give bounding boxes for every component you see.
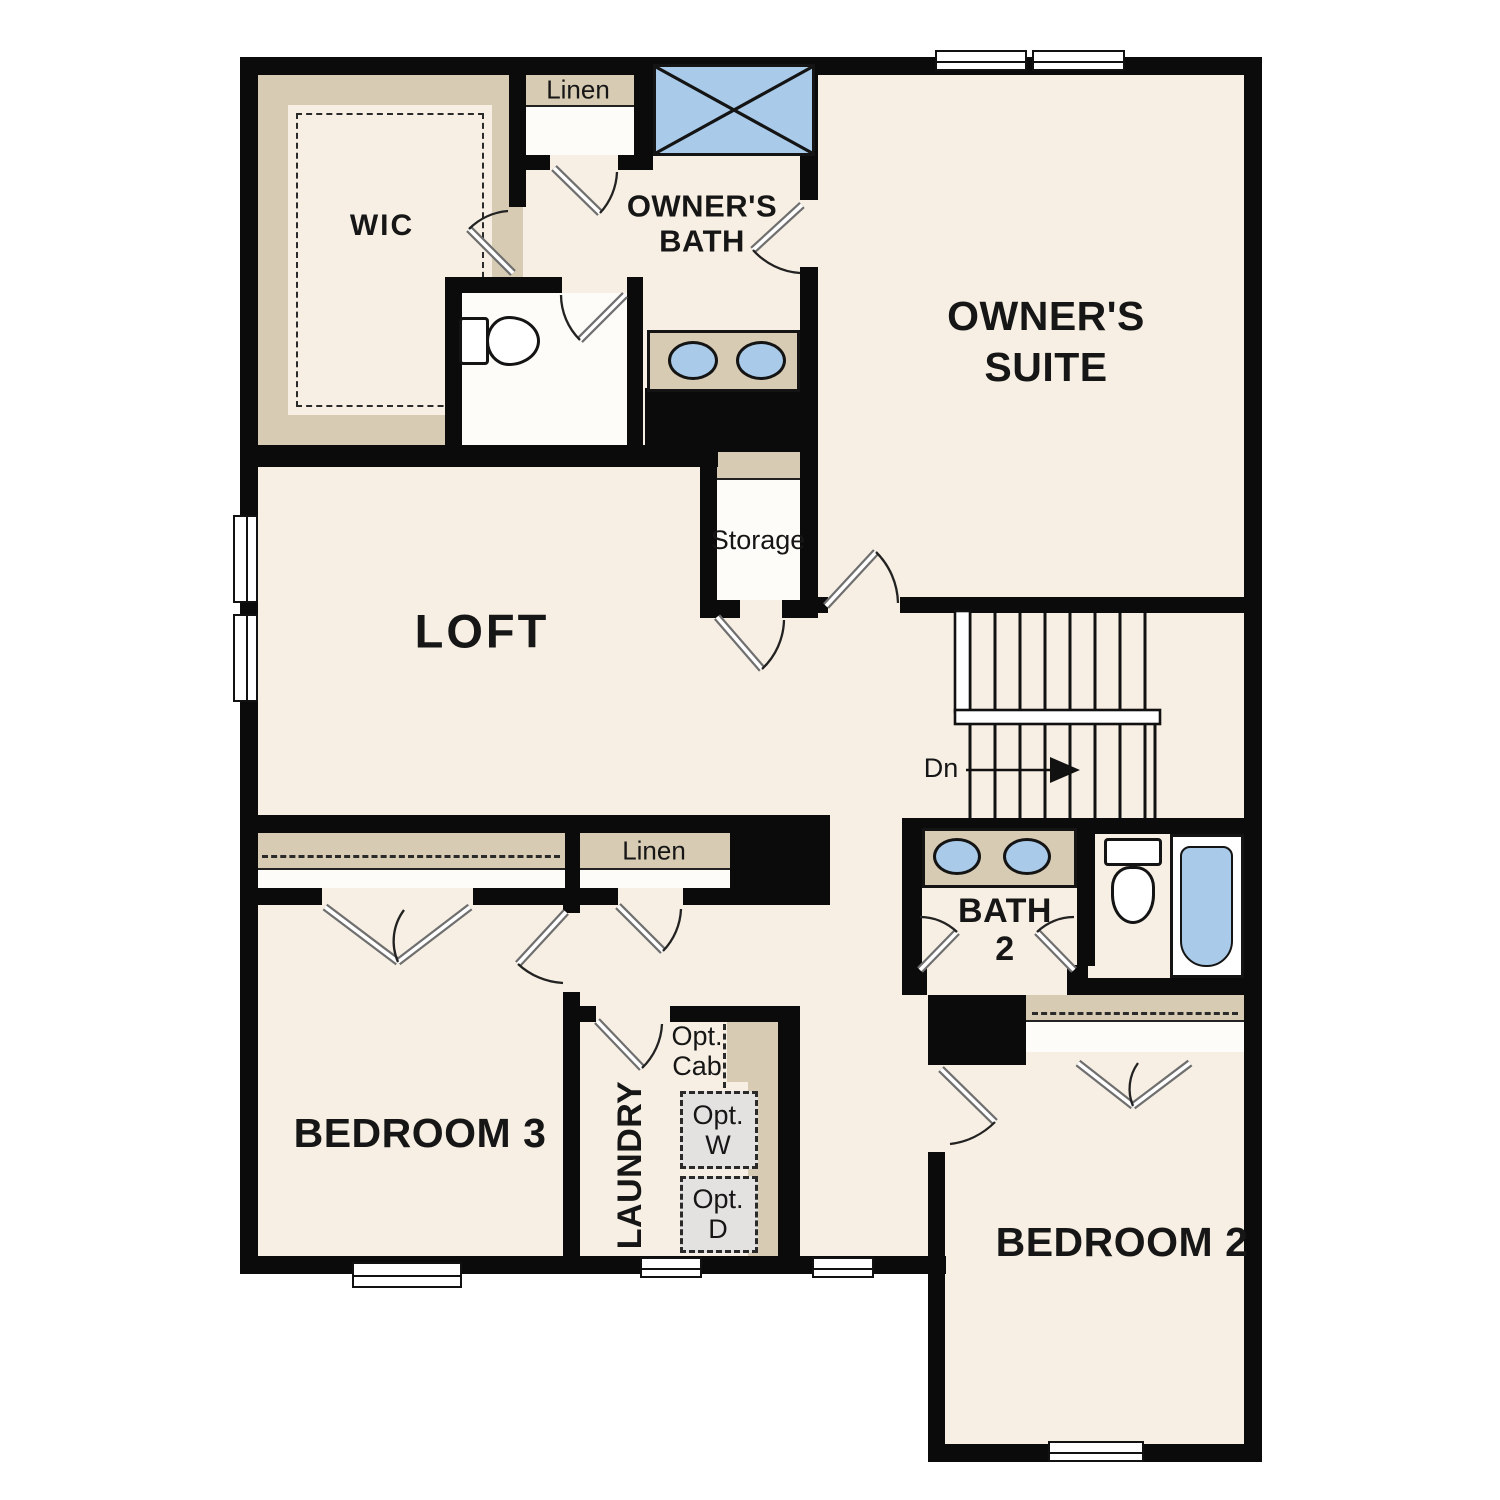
wall [240, 888, 322, 905]
wall [902, 818, 922, 978]
wall [818, 597, 828, 613]
room-label-bath2: BATH2 [958, 892, 1052, 968]
opt-cab-dash [723, 1024, 726, 1088]
stairs-down-label: Dn [924, 753, 959, 783]
wall [645, 388, 818, 452]
wall [928, 995, 1026, 1065]
floor-plan: WIC Linen OWNER'SBATH OWNER'SSUITE LOFT … [0, 0, 1500, 1500]
sink-icon [1003, 838, 1051, 875]
wall [509, 75, 526, 207]
wall [683, 888, 730, 905]
wall [730, 833, 830, 905]
window-icon [640, 1257, 702, 1278]
room-label-linen-mid: Linen [622, 836, 686, 865]
bedroom3-closet-shelf [258, 833, 565, 870]
room-label-bedroom3: BEDROOM 3 [294, 1111, 547, 1157]
wall [634, 75, 653, 170]
toilet-icon [1104, 838, 1162, 866]
wall [240, 815, 830, 833]
bathtub-basin [1180, 846, 1233, 967]
bedroom2-floor-extension [945, 1258, 1244, 1446]
window-icon [935, 50, 1027, 71]
bedroom3-closet-rod [262, 855, 560, 858]
toilet-bowl [1111, 866, 1155, 924]
wall [580, 1006, 596, 1022]
toilet-icon [459, 317, 489, 365]
wall [1067, 978, 1244, 995]
wall [509, 155, 550, 170]
bedroom2-closet-floor [1026, 1022, 1244, 1052]
wall [1067, 965, 1088, 978]
room-label-bedroom2: BEDROOM 2 [996, 1220, 1249, 1266]
sink-icon [736, 341, 786, 380]
room-label-laundry: LAUNDRY [611, 1081, 649, 1249]
wall [580, 888, 618, 905]
wall [928, 1152, 945, 1462]
linen-top-floor [526, 107, 634, 155]
linen-mid-floor [580, 870, 730, 888]
wall [905, 965, 927, 978]
wall [445, 277, 562, 293]
room-label-owners-bath: OWNER'SBATH [627, 189, 777, 258]
room-label-linen-top: Linen [546, 75, 610, 104]
window-icon [233, 614, 258, 702]
bedroom2-closet-shelf [1026, 995, 1244, 1022]
wall [778, 1006, 800, 1256]
wall [627, 277, 643, 449]
laundry-cabinet-top [727, 1022, 778, 1082]
room-label-owners-suite: OWNER'SSUITE [947, 291, 1145, 394]
wall [1077, 834, 1095, 966]
storage-shelf [717, 452, 800, 480]
wall [902, 978, 927, 995]
wall [900, 597, 1244, 613]
room-label-loft: LOFT [415, 606, 550, 659]
bedroom3-closet-floor [258, 870, 565, 888]
bedroom2-closet-rod [1032, 1012, 1238, 1015]
sink-icon [933, 838, 981, 875]
wall [782, 600, 818, 618]
sink-icon [668, 341, 718, 380]
label-opt-washer: Opt.W [692, 1100, 743, 1160]
shower-icon [653, 64, 815, 156]
label-opt-cab: Opt.Cab [671, 1021, 722, 1081]
window-icon [1032, 50, 1125, 71]
window-icon [1048, 1441, 1144, 1462]
wall [700, 600, 740, 618]
window-icon [812, 1257, 874, 1278]
window-icon [352, 1262, 462, 1288]
wall [563, 992, 580, 1256]
room-label-wic: WIC [350, 209, 414, 243]
room-label-storage: Storage [711, 525, 806, 555]
wall [240, 445, 718, 467]
label-opt-dryer: Opt.D [692, 1184, 743, 1244]
wall [563, 888, 580, 913]
water-closet-floor [462, 293, 627, 445]
window-icon [233, 515, 258, 603]
